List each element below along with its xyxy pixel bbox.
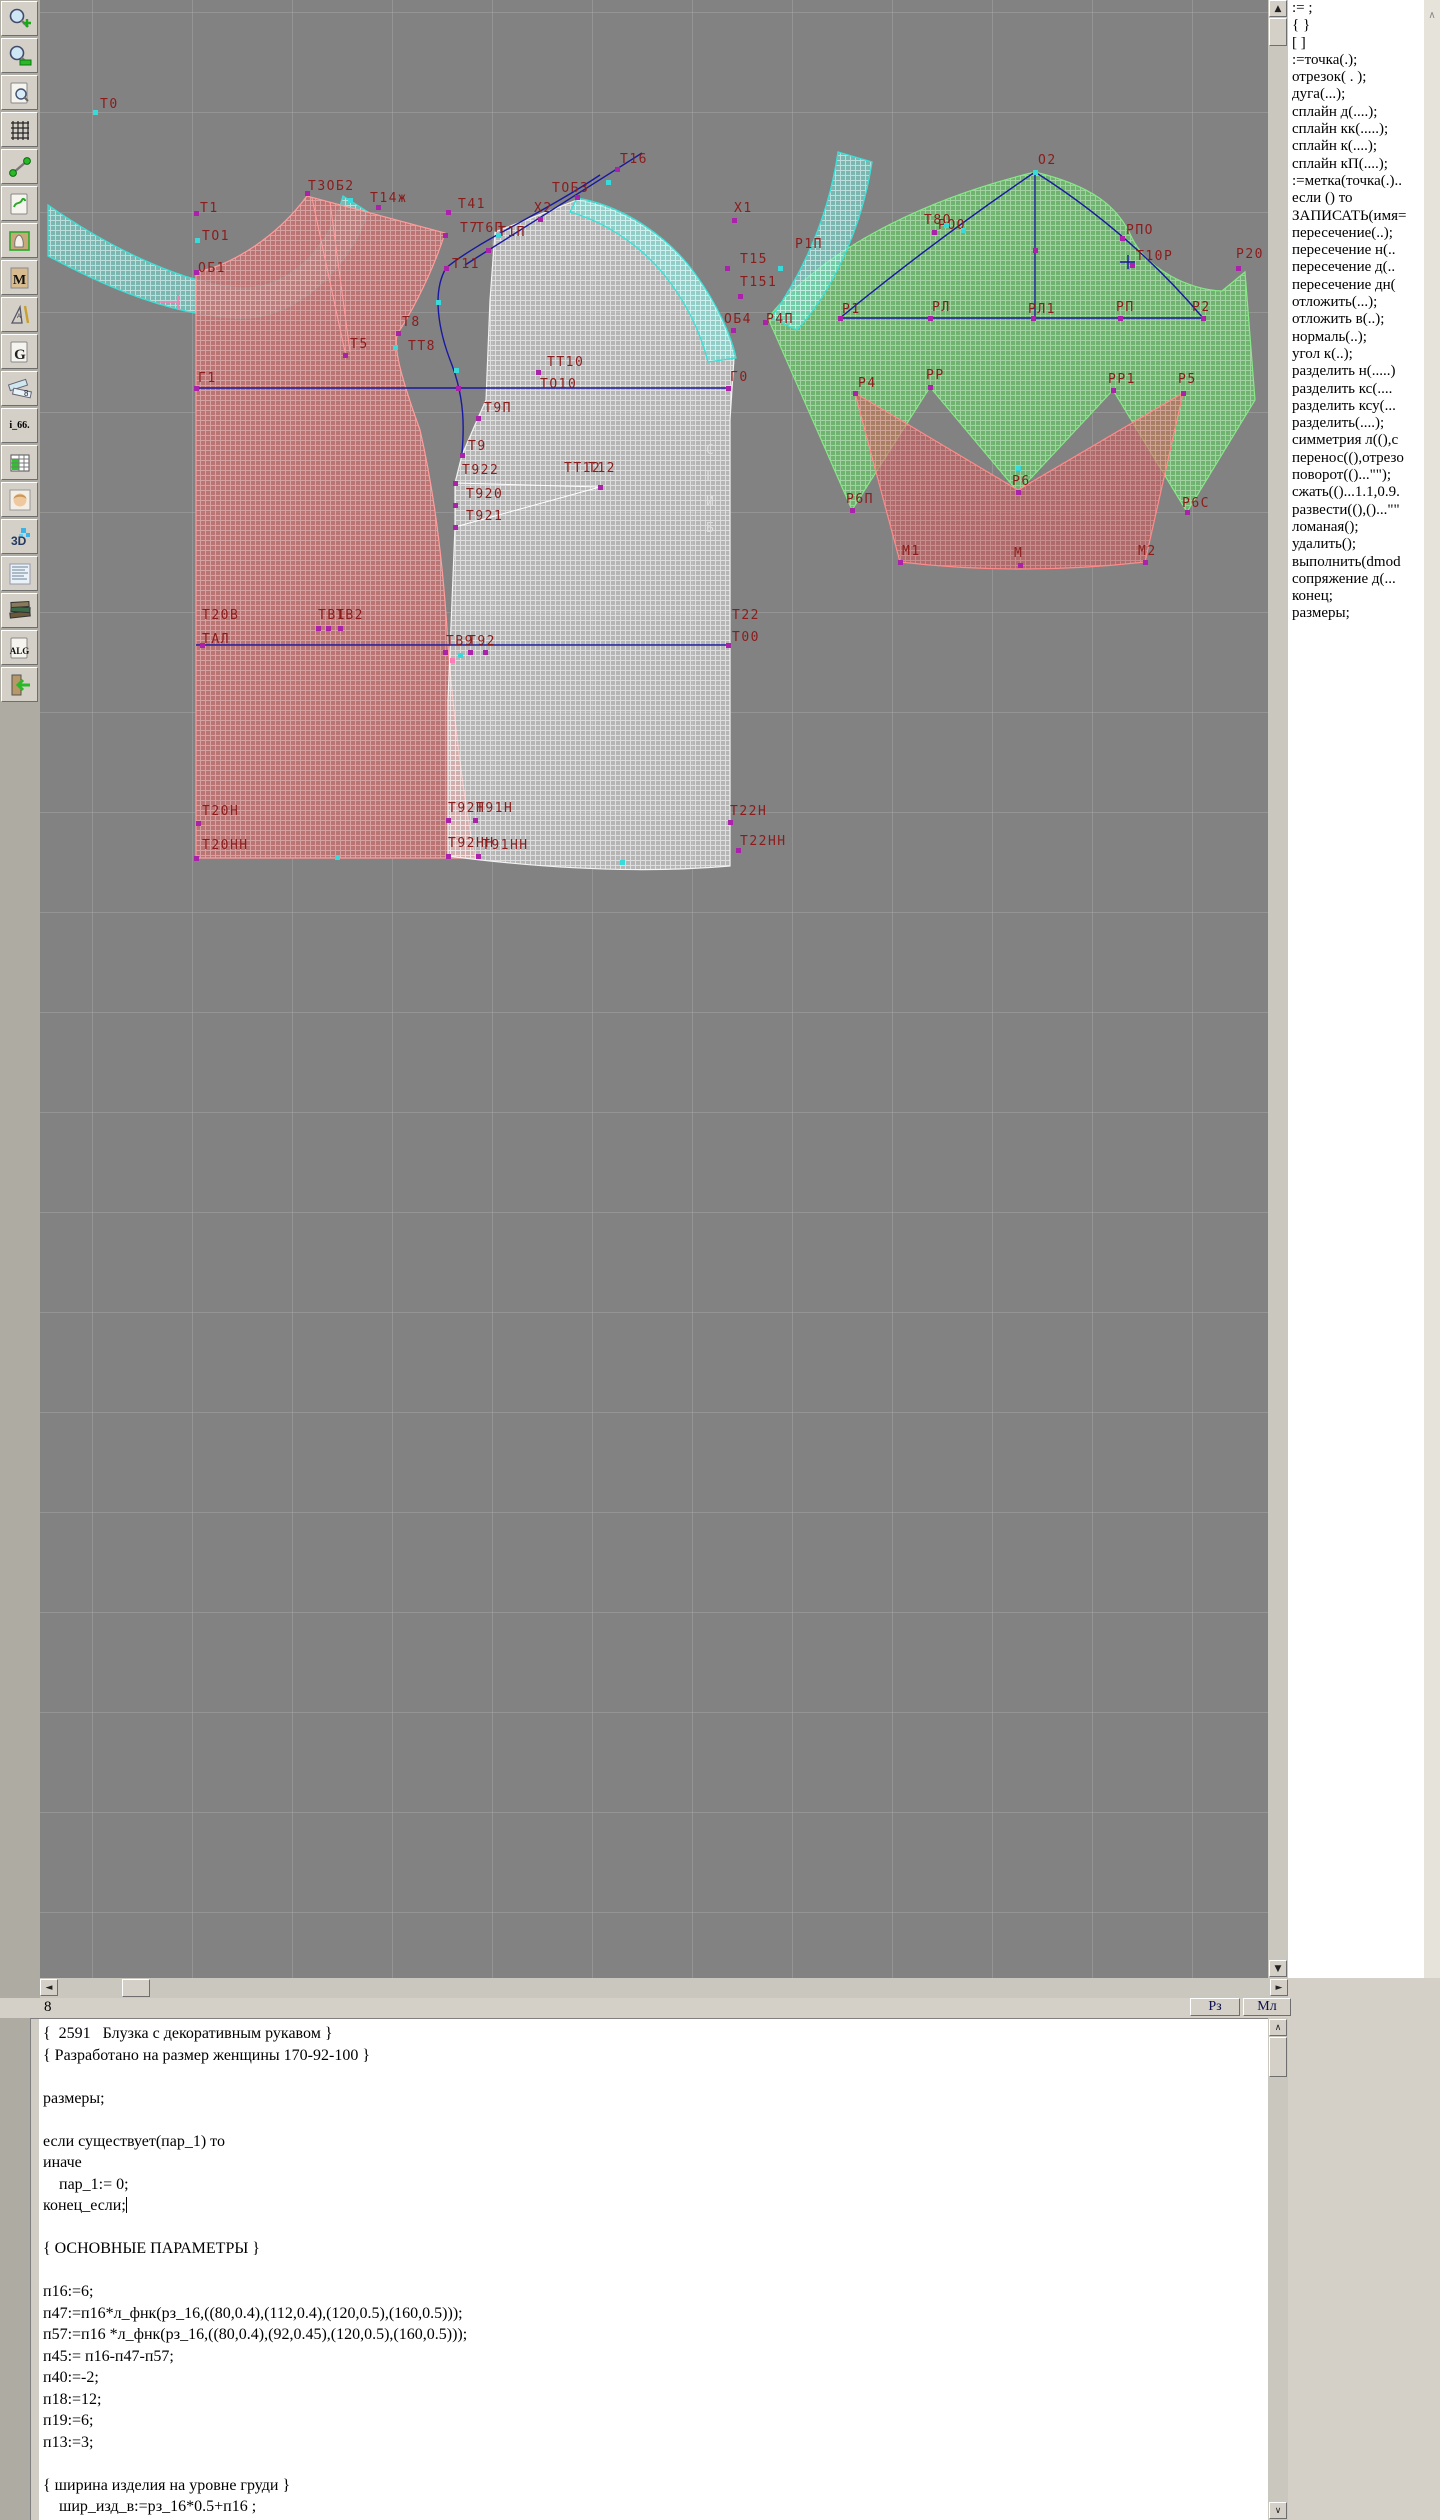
cad-application-window: MАG8i_66.3DALG xyxy=(0,0,1440,2520)
sheet-m-button[interactable]: M xyxy=(1,260,38,295)
point-label-Т14ж: Т14ж xyxy=(370,192,407,205)
table-button[interactable] xyxy=(1,445,38,480)
pattern-point[interactable] xyxy=(1031,316,1036,321)
command-item[interactable]: :=точка(.); xyxy=(1288,52,1424,69)
pattern-point[interactable] xyxy=(194,856,199,861)
command-item[interactable]: сжать(()...1.1,0.9. xyxy=(1288,484,1424,501)
sheet-g-icon: G xyxy=(7,339,33,365)
pattern-point[interactable] xyxy=(763,320,768,325)
measure-rulers-button[interactable]: 8 xyxy=(1,371,38,406)
canvas-hscroll-thumb[interactable] xyxy=(122,1979,150,1997)
code-line: п18:=12; xyxy=(43,2389,467,2411)
pattern-point[interactable] xyxy=(396,331,401,336)
canvas-scroll-left-button[interactable]: ◄ xyxy=(40,1979,58,1996)
point-label-Т920: Т920 xyxy=(466,488,503,501)
pattern-point[interactable] xyxy=(598,485,603,490)
command-item[interactable]: разделить(....); xyxy=(1288,415,1424,432)
editor-scroll-up-button[interactable]: ∧ xyxy=(1269,2019,1287,2036)
pattern-point[interactable] xyxy=(1018,563,1023,568)
command-item[interactable]: пересечение д(.. xyxy=(1288,259,1424,276)
rz-button[interactable]: Рз xyxy=(1190,1998,1240,2016)
command-item[interactable]: отложить в(..); xyxy=(1288,311,1424,328)
ml-button[interactable]: Мл xyxy=(1243,1998,1291,2016)
status-page-number: 8 xyxy=(44,1999,52,2016)
pattern-point[interactable] xyxy=(443,233,448,238)
portrait-button[interactable] xyxy=(1,482,38,517)
pattern-point[interactable] xyxy=(606,180,611,185)
point-label-Т22: Т22 xyxy=(732,609,760,622)
command-item[interactable]: разделить н(.....) xyxy=(1288,363,1424,380)
pattern-point[interactable] xyxy=(195,238,200,243)
point-label-РПО: РПО xyxy=(1126,224,1154,237)
zoom-out-button[interactable] xyxy=(1,38,38,73)
svg-text:ALG: ALG xyxy=(9,646,29,656)
editor-code-text[interactable]: { 2591 Блузка с декоративным рукавом }{ … xyxy=(43,2023,467,2518)
point-label-Х1: Х1 xyxy=(734,202,753,215)
pattern-point[interactable] xyxy=(194,386,199,391)
code-line: { Разработано на размер женщины 170-92-1… xyxy=(43,2045,467,2067)
canvas-vscrollbar[interactable]: ▲ ▼ xyxy=(1268,0,1288,1978)
threed-icon: 3D xyxy=(7,524,33,550)
zoom-out-icon xyxy=(7,43,33,69)
pattern-point[interactable] xyxy=(853,391,858,396)
code-line: шир_изд_в:=рз_16*0.5+п16 ; xyxy=(43,2496,467,2518)
command-item[interactable]: пересечение(..); xyxy=(1288,225,1424,242)
canvas-scroll-right-button[interactable]: ► xyxy=(1270,1979,1288,1996)
point-label-Т22Н: Т22Н xyxy=(730,805,767,818)
point-label-Т1П: Т1П xyxy=(498,226,526,239)
code-line: п40:=-2; xyxy=(43,2367,467,2389)
command-item[interactable]: := ; xyxy=(1288,0,1424,17)
code-line: п19:=6; xyxy=(43,2410,467,2432)
grid-icon xyxy=(7,117,33,143)
pattern-point[interactable] xyxy=(468,650,473,655)
point-label-Р6П: Р6П xyxy=(846,493,874,506)
pattern-point[interactable] xyxy=(731,328,736,333)
command-item[interactable]: { } xyxy=(1288,17,1424,34)
svg-text:8: 8 xyxy=(24,389,29,398)
preview-icon xyxy=(7,80,33,106)
preview-button[interactable] xyxy=(1,75,38,110)
point-label-Т922: Т922 xyxy=(462,464,499,477)
pattern-point[interactable] xyxy=(453,525,458,530)
point-label-Т9П: Т9П xyxy=(484,402,512,415)
pattern-point[interactable] xyxy=(444,266,449,271)
command-item[interactable]: размеры; xyxy=(1288,605,1424,622)
point-label-Т41: Т41 xyxy=(458,198,486,211)
point-label-Т11: Т11 xyxy=(452,258,480,271)
command-item[interactable]: разделить кс(.... xyxy=(1288,381,1424,398)
point-label-Г1: Г1 xyxy=(198,372,217,385)
table-icon xyxy=(7,450,33,476)
point-label-Р4: Р4 xyxy=(858,377,877,390)
command-item[interactable]: дуга(...); xyxy=(1288,86,1424,103)
pattern-point[interactable] xyxy=(1201,316,1206,321)
point-label-ТВ2: ТВ2 xyxy=(336,609,364,622)
command-item[interactable]: развести((),()..."" xyxy=(1288,502,1424,519)
command-item[interactable]: удалить(); xyxy=(1288,536,1424,553)
command-item[interactable]: угол к(..); xyxy=(1288,346,1424,363)
point-label-Т91НН: Т91НН xyxy=(482,839,529,852)
point-label-Р6С: Р6С xyxy=(1182,497,1210,510)
point-label-Т10Р: Т10Р xyxy=(1136,250,1173,263)
svg-text:M: M xyxy=(12,273,25,288)
pattern-point[interactable] xyxy=(1130,263,1135,268)
pattern-point[interactable] xyxy=(575,195,580,200)
pattern-point[interactable] xyxy=(944,223,949,228)
code-line: { ширина изделия на уровне груди } xyxy=(43,2475,467,2497)
grid-button[interactable] xyxy=(1,112,38,147)
pattern-point[interactable] xyxy=(1143,560,1148,565)
pattern-point[interactable] xyxy=(483,650,488,655)
pattern-point[interactable] xyxy=(476,416,481,421)
pattern-point[interactable] xyxy=(305,191,310,196)
alg-icon: ALG xyxy=(7,635,33,661)
measure-rulers-icon: 8 xyxy=(7,376,33,402)
text-sheet-icon xyxy=(7,561,33,587)
code-line: п45:= п16-п47-п57; xyxy=(43,2346,467,2368)
point-label-ТОБ3: ТОБ3 xyxy=(552,182,589,195)
command-item[interactable]: сопряжение д(... xyxy=(1288,571,1424,588)
point-label-РР1: РР1 xyxy=(1108,373,1136,386)
pattern-point[interactable] xyxy=(446,818,451,823)
point-label-Т1: Т1 xyxy=(200,202,219,215)
zoom-in-button[interactable] xyxy=(1,1,38,36)
code-line xyxy=(43,2453,467,2475)
pattern-point[interactable] xyxy=(725,266,730,271)
drafting-tools-button[interactable]: А xyxy=(1,297,38,332)
code-editor[interactable]: { 2591 Блузка с декоративным рукавом }{ … xyxy=(30,2018,1268,2520)
editor-scroll-down-button[interactable]: ∨ xyxy=(1269,2502,1287,2519)
command-list-panel: := ;{ }[ ]:=точка(.);отрезок( . );дуга(.… xyxy=(1288,0,1424,1978)
command-item[interactable]: :=метка(точка(.).. xyxy=(1288,173,1424,190)
point-label-Р20: Р20 xyxy=(1236,248,1264,261)
code-line: иначе xyxy=(43,2152,467,2174)
editor-vscrollbar[interactable]: ∧ ∨ xyxy=(1268,2018,1288,2520)
pattern-point[interactable] xyxy=(1185,510,1190,515)
svg-text:3D: 3D xyxy=(11,534,27,548)
command-item[interactable]: поворот(()...""); xyxy=(1288,467,1424,484)
pattern-point[interactable] xyxy=(850,508,855,513)
pattern-point[interactable] xyxy=(335,855,340,860)
code-line: пар_1:= 0; xyxy=(43,2174,467,2196)
point-label-Т00: Т00 xyxy=(732,631,760,644)
pattern-point[interactable] xyxy=(538,217,543,222)
sheet-m-icon: M xyxy=(7,265,33,291)
pattern-point[interactable] xyxy=(393,345,398,350)
point-label-О2: О2 xyxy=(1038,154,1057,167)
canvas-hscrollbar[interactable]: ◄ ► xyxy=(40,1978,1288,1998)
pattern-point[interactable] xyxy=(473,818,478,823)
command-item[interactable]: сплайн кк(.....); xyxy=(1288,121,1424,138)
code-line: п13:=3; xyxy=(43,2432,467,2454)
point-label-М1: М1 xyxy=(902,545,921,558)
point-label-Т20НН: Т20НН xyxy=(202,839,249,852)
pattern-point[interactable] xyxy=(728,820,733,825)
command-item[interactable]: пересечение дн( xyxy=(1288,277,1424,294)
panel-scroll-up-icon[interactable]: ∧ xyxy=(1425,10,1439,24)
point-label-М2: М2 xyxy=(1138,545,1157,558)
pattern-point[interactable] xyxy=(1181,391,1186,396)
point-label-ТТ10: ТТ10 xyxy=(547,356,584,369)
pattern-point[interactable] xyxy=(738,294,743,299)
point-label-Т0: Т0 xyxy=(100,98,119,111)
pattern-point[interactable] xyxy=(343,353,348,358)
command-item[interactable]: выполнить(dmod xyxy=(1288,554,1424,571)
pattern-point[interactable] xyxy=(928,316,933,321)
pattern-point[interactable] xyxy=(726,643,731,648)
command-item[interactable]: [ ] xyxy=(1288,35,1424,52)
canvas-vscroll-thumb[interactable] xyxy=(1269,18,1287,46)
command-item[interactable]: пересечение н(.. xyxy=(1288,242,1424,259)
panel-scrollbar[interactable]: ∧ xyxy=(1424,0,1440,1978)
text-sheet-button[interactable] xyxy=(1,556,38,591)
pattern-point[interactable] xyxy=(961,228,966,233)
pattern-point[interactable] xyxy=(200,643,205,648)
pattern-point[interactable] xyxy=(620,860,625,865)
pattern-point[interactable] xyxy=(194,211,199,216)
point-label-Т151: Т151 xyxy=(740,276,777,289)
point-label-Т8: Т8 xyxy=(402,316,421,329)
editor-margin xyxy=(31,2019,39,2520)
point-label-Т15: Т15 xyxy=(740,253,768,266)
pattern-point[interactable] xyxy=(446,854,451,859)
pattern-point[interactable] xyxy=(932,230,937,235)
command-item[interactable]: сплайн кП(....); xyxy=(1288,156,1424,173)
point-label-Т20В: Т20В xyxy=(202,609,239,622)
point-label-Р4П: Р4П xyxy=(766,313,794,326)
canvas-scroll-up-button[interactable]: ▲ xyxy=(1269,0,1287,17)
pattern-point[interactable] xyxy=(1016,490,1021,495)
command-item[interactable]: конец; xyxy=(1288,588,1424,605)
threed-button[interactable]: 3D xyxy=(1,519,38,554)
front-bodice-piece[interactable] xyxy=(196,196,475,858)
pattern-point[interactable] xyxy=(316,626,321,631)
command-item[interactable]: симметрия л((),с xyxy=(1288,432,1424,449)
pattern-point[interactable] xyxy=(736,848,741,853)
point-label-Г0: Г0 xyxy=(730,371,749,384)
svg-text:А: А xyxy=(16,314,20,320)
command-item[interactable]: ломаная(); xyxy=(1288,519,1424,536)
i66-button[interactable]: i_66. xyxy=(1,408,38,443)
point-label-Р1: Р1 xyxy=(842,303,861,316)
pattern-point[interactable] xyxy=(436,300,441,305)
pattern-drawing xyxy=(40,0,1268,1978)
text-caret xyxy=(126,2197,127,2213)
pattern-point[interactable] xyxy=(476,854,481,859)
sheet-g-button[interactable]: G xyxy=(1,334,38,369)
point-label-Р1П: Р1П xyxy=(795,238,823,251)
command-item[interactable]: ЗАПИСАТЬ(имя= xyxy=(1288,208,1424,225)
pattern-point[interactable] xyxy=(726,386,731,391)
pattern-point[interactable] xyxy=(1236,266,1241,271)
pattern-point[interactable] xyxy=(778,266,783,271)
i66-icon: i_66. xyxy=(9,420,29,431)
pattern-point[interactable] xyxy=(1111,388,1116,393)
pattern-point[interactable] xyxy=(194,270,199,275)
point-label-Т921: Т921 xyxy=(466,510,503,523)
point-label-ОБ1: ОБ1 xyxy=(198,262,226,275)
pattern-canvas[interactable]: С Г И Б Т0Т1ТО1ОБ1Т3ОБ2Т14жТ41Т7Т11Т5Т8Т… xyxy=(40,0,1268,1978)
pattern-sheet-icon xyxy=(7,228,33,254)
point-label-ТТ8: ТТ8 xyxy=(408,340,436,353)
drafting-tools-icon: А xyxy=(7,302,33,328)
pattern-point[interactable] xyxy=(376,205,381,210)
code-line: конец_если; xyxy=(43,2195,467,2217)
pattern-point[interactable] xyxy=(446,210,451,215)
pattern-point[interactable] xyxy=(1033,248,1038,253)
pattern-point[interactable] xyxy=(496,233,501,238)
pattern-point[interactable] xyxy=(486,248,491,253)
pattern-point[interactable] xyxy=(443,650,448,655)
point-label-Т3ОБ2: Т3ОБ2 xyxy=(308,180,355,193)
pattern-point[interactable] xyxy=(1033,170,1038,175)
point-label-ОБ4: ОБ4 xyxy=(724,313,752,326)
pattern-point[interactable] xyxy=(1016,466,1021,471)
code-line xyxy=(43,2217,467,2239)
pattern-point[interactable] xyxy=(326,626,331,631)
point-label-Т22НН: Т22НН xyxy=(740,835,787,848)
code-line: п57:=п16 *л_фнк(рз_16,((80,0.4),(92,0.45… xyxy=(43,2324,467,2346)
alg-button[interactable]: ALG xyxy=(1,630,38,665)
code-line: размеры; xyxy=(43,2088,467,2110)
editor-vscroll-thumb[interactable] xyxy=(1269,2037,1287,2077)
books-button[interactable] xyxy=(1,593,38,628)
books-icon xyxy=(7,598,33,624)
code-line xyxy=(43,2260,467,2282)
pattern-point[interactable] xyxy=(732,218,737,223)
pattern-point[interactable] xyxy=(93,110,98,115)
point-label-Т92: Т92 xyxy=(468,635,496,648)
code-line: { ОСНОВНЫЕ ПАРАМЕТРЫ } xyxy=(43,2238,467,2260)
pattern-point[interactable] xyxy=(615,167,620,172)
point-label-Т9: Т9 xyxy=(468,440,487,453)
code-line: п16:=6; xyxy=(43,2281,467,2303)
sheet-map-button[interactable] xyxy=(1,186,38,221)
code-line xyxy=(43,2109,467,2131)
command-item[interactable]: разделить ксу(... xyxy=(1288,398,1424,415)
point-label-ТО10: ТО10 xyxy=(540,378,577,391)
command-item[interactable]: если () то xyxy=(1288,190,1424,207)
pattern-point[interactable] xyxy=(456,386,461,391)
point-label-РЛ: РЛ xyxy=(932,301,951,314)
point-label-РЛ1: РЛ1 xyxy=(1028,303,1056,316)
exit-button[interactable] xyxy=(1,667,38,702)
segment-button[interactable] xyxy=(1,149,38,184)
pattern-point[interactable] xyxy=(898,560,903,565)
command-item[interactable]: сплайн к(....); xyxy=(1288,138,1424,155)
point-label-Х2: Х2 xyxy=(534,202,553,215)
pattern-point[interactable] xyxy=(928,385,933,390)
command-item[interactable]: сплайн д(....); xyxy=(1288,104,1424,121)
point-label-РП: РП xyxy=(1116,301,1135,314)
command-item[interactable]: отрезок( . ); xyxy=(1288,69,1424,86)
exit-icon xyxy=(7,672,33,698)
point-label-М: М xyxy=(1014,547,1023,560)
command-item[interactable]: отложить(...); xyxy=(1288,294,1424,311)
code-line: { 2591 Блузка с декоративным рукавом } xyxy=(43,2023,467,2045)
code-line xyxy=(43,2066,467,2088)
pattern-point[interactable] xyxy=(460,453,465,458)
point-label-Р2: Р2 xyxy=(1192,301,1211,314)
sheet-map-icon xyxy=(7,191,33,217)
point-label-РР: РР xyxy=(926,369,945,382)
point-label-Т16: Т16 xyxy=(620,153,648,166)
point-label-Р6: Р6 xyxy=(1012,475,1031,488)
pattern-point[interactable] xyxy=(536,370,541,375)
pattern-point[interactable] xyxy=(1120,236,1125,241)
pattern-point[interactable] xyxy=(453,503,458,508)
pattern-sheet-button[interactable] xyxy=(1,223,38,258)
pattern-point[interactable] xyxy=(196,821,201,826)
pattern-point[interactable] xyxy=(338,626,343,631)
pattern-point[interactable] xyxy=(1118,316,1123,321)
pattern-point[interactable] xyxy=(453,481,458,486)
zoom-in-icon xyxy=(7,6,33,32)
point-label-Т91Н: Т91Н xyxy=(476,802,513,815)
segment-icon xyxy=(7,154,33,180)
pattern-point[interactable] xyxy=(838,316,843,321)
portrait-icon xyxy=(7,487,33,513)
pattern-point[interactable] xyxy=(458,653,463,658)
canvas-scroll-down-button[interactable]: ▼ xyxy=(1269,1960,1287,1977)
status-row: 8 Рз Мл xyxy=(0,1998,1440,2018)
svg-text:G: G xyxy=(14,347,26,363)
pattern-point[interactable] xyxy=(348,198,353,203)
command-item[interactable]: нормаль(..); xyxy=(1288,329,1424,346)
fold-label: С Г И Б xyxy=(706,438,714,542)
point-label-Т20Н: Т20Н xyxy=(202,805,239,818)
point-label-ТАЛ: ТАЛ xyxy=(202,633,230,646)
point-label-ТО1: ТО1 xyxy=(202,230,230,243)
command-item[interactable]: перенос((),отрезо xyxy=(1288,450,1424,467)
code-line: если существует(пар_1) то xyxy=(43,2131,467,2153)
code-line: п47:=п16*л_фнк(рз_16,((80,0.4),(112,0.4)… xyxy=(43,2303,467,2325)
point-label-Т12: Т12 xyxy=(588,462,616,475)
pattern-point[interactable] xyxy=(454,368,459,373)
pattern-point[interactable] xyxy=(450,658,455,663)
point-label-Р5: Р5 xyxy=(1178,373,1197,386)
point-label-Т5: Т5 xyxy=(350,338,369,351)
